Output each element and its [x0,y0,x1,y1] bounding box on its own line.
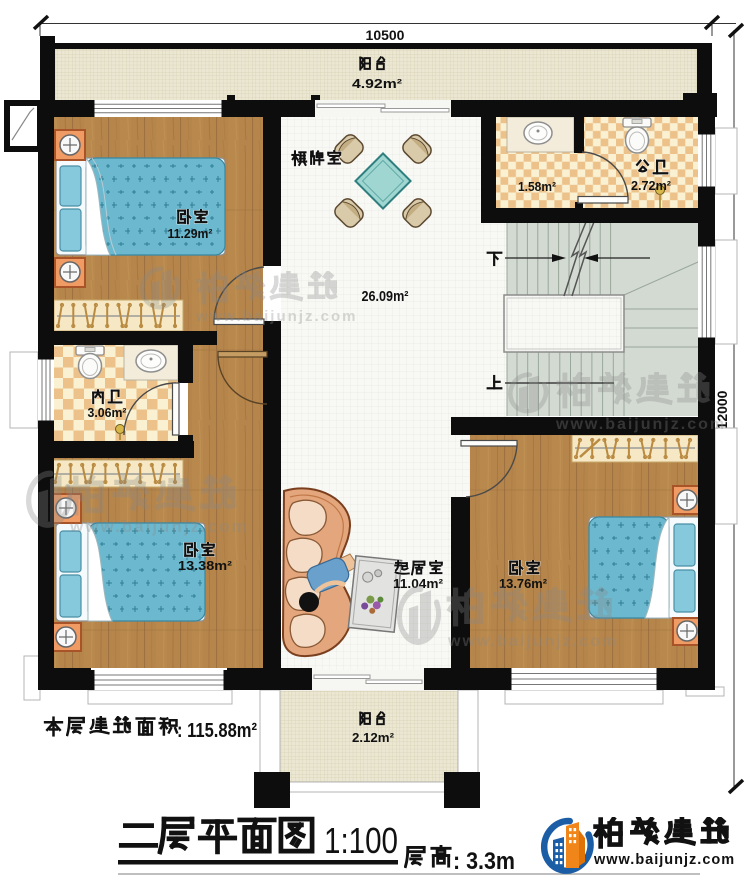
svg-text:: 115.88m²: : 115.88m² [177,720,257,742]
svg-text:2.12m²: 2.12m² [352,731,394,745]
svg-text:13.38m²: 13.38m² [178,558,233,573]
svg-text:13.76m²: 13.76m² [499,576,548,591]
svg-text:1:100: 1:100 [324,820,398,861]
svg-text:www.baijunjz.com: www.baijunjz.com [195,308,357,325]
svg-text:3.06m²: 3.06m² [88,406,127,420]
svg-text:2.72m²: 2.72m² [631,179,671,193]
svg-text:10500: 10500 [366,27,405,43]
svg-text:11.29m²: 11.29m² [168,226,214,241]
svg-text:www.baijunjz.com: www.baijunjz.com [69,517,249,536]
svg-text:4.92m²: 4.92m² [352,76,403,91]
svg-text:26.09m²: 26.09m² [362,289,409,305]
svg-text:www.baijunjz.com: www.baijunjz.com [593,852,735,868]
svg-text:www.baijunjz.com: www.baijunjz.com [447,633,618,650]
svg-text:1.58m²: 1.58m² [518,180,556,194]
svg-text:: 3.3m: : 3.3m [453,848,515,875]
svg-text:www.baijunjz.com: www.baijunjz.com [555,416,726,433]
